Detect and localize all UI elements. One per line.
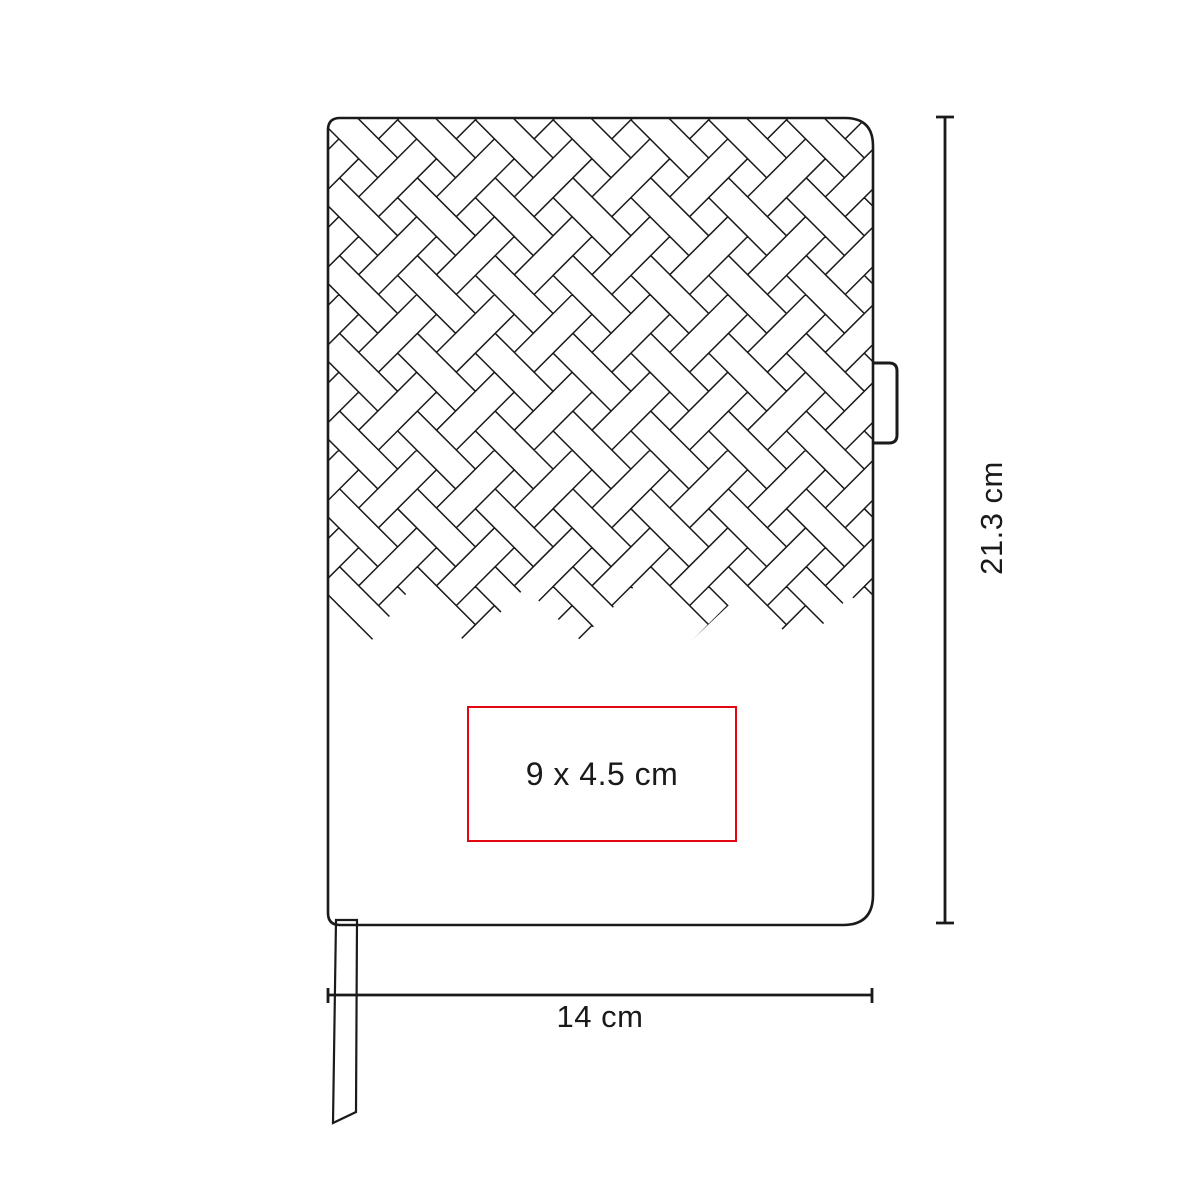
weave-pattern: [242, 61, 942, 722]
print-area-box: 9 x 4.5 cm: [467, 706, 737, 842]
height-dimension-line: [936, 117, 954, 923]
width-dimension-label: 14 cm: [557, 999, 644, 1035]
ribbon-bookmark: [333, 920, 357, 1123]
weave-strips: [242, 61, 942, 722]
pen-loop: [872, 363, 897, 443]
height-dimension-label: 21.3 cm: [974, 461, 1010, 575]
print-area-label: 9 x 4.5 cm: [526, 756, 679, 793]
product-diagram: 9 x 4.5 cm 21.3 cm 14 cm: [0, 0, 1200, 1200]
